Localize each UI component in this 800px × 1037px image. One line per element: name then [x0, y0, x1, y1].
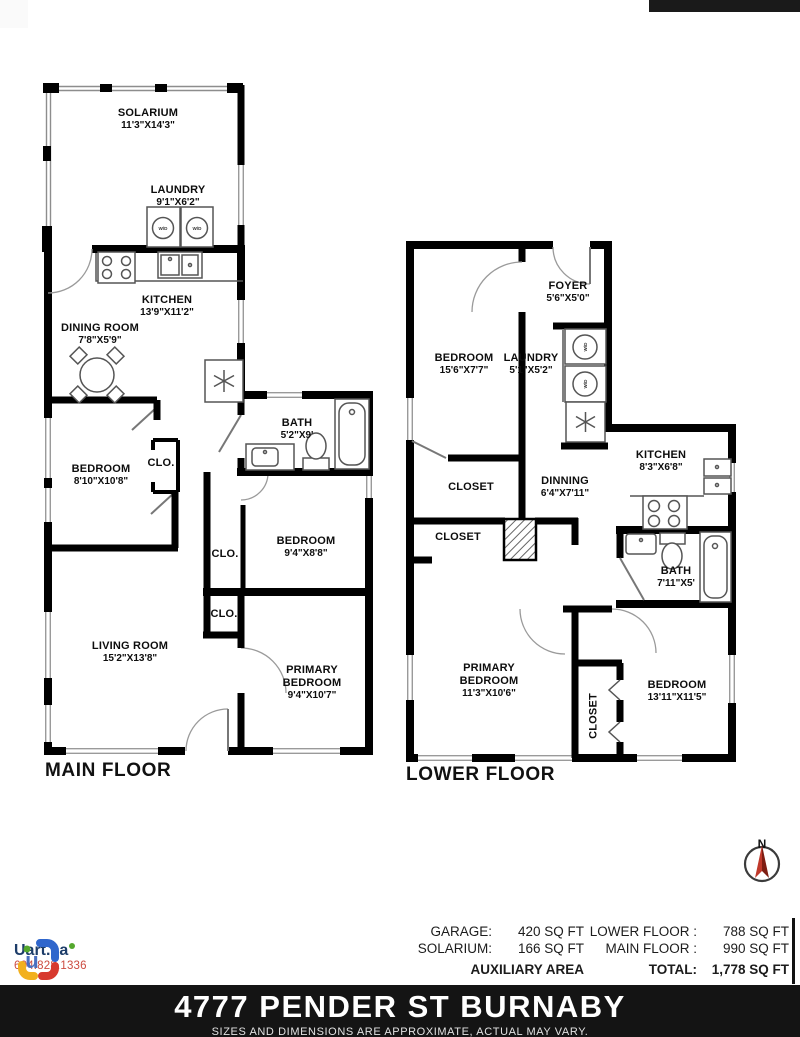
area-label: LOWER FLOOR : — [590, 924, 697, 941]
room-label-bedroom-2-lower: BEDROOM 13'11"X11'5" — [648, 679, 707, 704]
floorplan-page: W/D W/D — [0, 0, 800, 1037]
bathtub-icon — [700, 532, 731, 602]
room-label-closet-3-main: CLO. — [210, 608, 237, 621]
disclaimer-text: SIZES AND DIMENSIONS ARE APPROXIMATE, AC… — [0, 1026, 800, 1037]
room-label-bedroom-1-lower: BEDROOM 15'6"X7'7" — [435, 352, 494, 377]
auxiliary-area-summary: GARAGE: 420 SQ FT SOLARIUM: 166 SQ FT AU… — [418, 924, 584, 979]
area-value: 166 SQ FT — [498, 941, 584, 958]
wd-label: W/D — [583, 379, 588, 389]
room-label-living-room: LIVING ROOM 15'2"X13'8" — [92, 640, 168, 665]
room-label-bath-main: BATH 5'2"X9' — [281, 417, 314, 442]
chimney-hatch — [504, 519, 536, 560]
room-label-dinning: DINNING 6'4"X7'11" — [541, 475, 589, 500]
brand-dot-icon — [69, 943, 75, 949]
area-value: 788 SQ FT — [703, 924, 789, 941]
room-label-closet-3-lower: CLOSET — [588, 693, 601, 739]
company-logo: Uart.ca 604.828.1336 u — [14, 934, 87, 972]
area-label: MAIN FLOOR : — [590, 941, 697, 958]
logo-mark-icon: u — [14, 934, 64, 986]
room-label-solarium: SOLARIUM 11'3"X14'3" — [118, 107, 178, 132]
fridge-icon — [566, 402, 605, 442]
room-label-kitchen-main: KITCHEN 13'9"X11'2" — [140, 294, 194, 319]
room-label-dining-room: DINING ROOM 7'8"X5'9" — [61, 322, 139, 347]
toilet-icon — [660, 533, 685, 569]
room-label-laundry-main: LAUNDRY 9'1"X6'2" — [151, 184, 206, 209]
room-label-bedroom-2-main: BEDROOM 9'4"X8'8" — [277, 535, 336, 560]
room-label-closet-1-main: CLO. — [147, 457, 174, 470]
floor-area-summary: LOWER FLOOR : 788 SQ FT MAIN FLOOR : 990… — [590, 924, 789, 979]
bathroom-sink-icon — [626, 534, 656, 554]
auxiliary-area-title: AUXILIARY AREA — [418, 962, 584, 979]
room-label-closet-1-lower: CLOSET — [448, 481, 494, 494]
area-label: GARAGE: — [418, 924, 492, 941]
address-bar: 4777 PENDER ST BURNABY SIZES AND DIMENSI… — [0, 985, 800, 1037]
bathroom-sink-icon — [246, 444, 294, 470]
kitchen-sink-icon — [704, 459, 731, 494]
compass-n-label: N — [758, 837, 767, 851]
stove-icon — [630, 496, 704, 529]
area-value: 420 SQ FT — [498, 924, 584, 941]
room-label-kitchen-lower: KITCHEN 8'3"X6'8" — [636, 449, 686, 474]
lower-floor-title: LOWER FLOOR — [406, 764, 555, 786]
room-label-bedroom-1-main: BEDROOM 8'10"X10'8" — [72, 463, 131, 488]
room-label-closet-2-main: CLO. — [211, 548, 238, 561]
stove-icon — [98, 252, 135, 283]
north-arrow-icon: N — [745, 837, 779, 881]
summary-divider — [792, 918, 795, 984]
room-label-primary-bedroom-main: PRIMARY BEDROOM 9'4"X10'7" — [270, 664, 354, 702]
wd-label: W/D — [583, 342, 588, 352]
bathtub-icon — [335, 399, 369, 469]
area-value: 990 SQ FT — [703, 941, 789, 958]
property-address: 4777 PENDER ST BURNABY — [0, 991, 800, 1022]
washer-dryer-icon: W/D W/D — [147, 207, 213, 247]
area-label: SOLARIUM: — [418, 941, 492, 958]
floorplan-drawing: W/D W/D — [0, 0, 800, 1037]
main-floor-title: MAIN FLOOR — [45, 760, 171, 782]
room-label-foyer: FOYER 5'6"X5'0" — [546, 280, 589, 305]
washer-dryer-icon: W/D W/D — [563, 329, 606, 402]
wd-label: W/D — [159, 226, 169, 231]
kitchen-sink-icon — [158, 252, 202, 278]
dining-table-icon — [70, 347, 124, 403]
room-label-primary-bedroom-lower: PRIMARY BEDROOM 11'3"X10'6" — [447, 662, 531, 700]
fridge-icon — [205, 360, 243, 402]
room-label-laundry-lower: LAUNDRY 5'1"X5'2" — [504, 352, 559, 377]
room-label-closet-2-lower: CLOSET — [435, 531, 481, 544]
wd-label: W/D — [193, 226, 203, 231]
total-value: 1,778 SQ FT — [703, 962, 789, 979]
total-label: TOTAL: — [590, 962, 697, 979]
room-label-bath-lower: BATH 7'11"X5' — [657, 565, 695, 590]
